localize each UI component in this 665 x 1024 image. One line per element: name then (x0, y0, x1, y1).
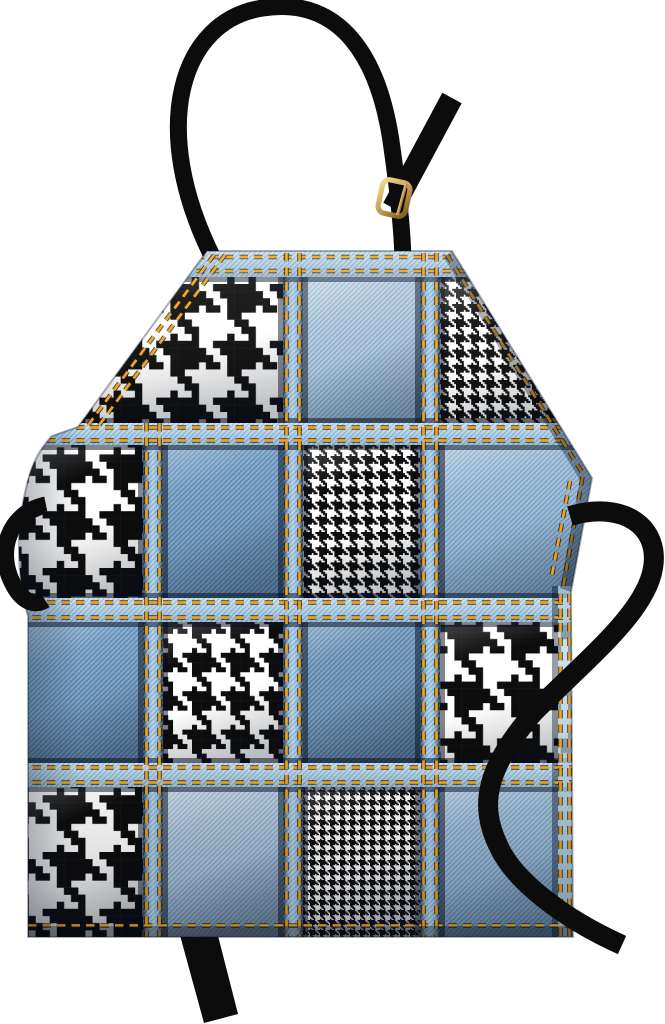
apron-body (16, 245, 650, 945)
denim-apron-illustration (0, 0, 665, 1024)
product-photo-canvas (0, 0, 665, 1024)
bottom-tie (178, 928, 238, 1023)
neck-strap (178, 7, 452, 258)
neck-strap-loop (178, 7, 403, 258)
neck-strap-loose-end (393, 98, 452, 208)
